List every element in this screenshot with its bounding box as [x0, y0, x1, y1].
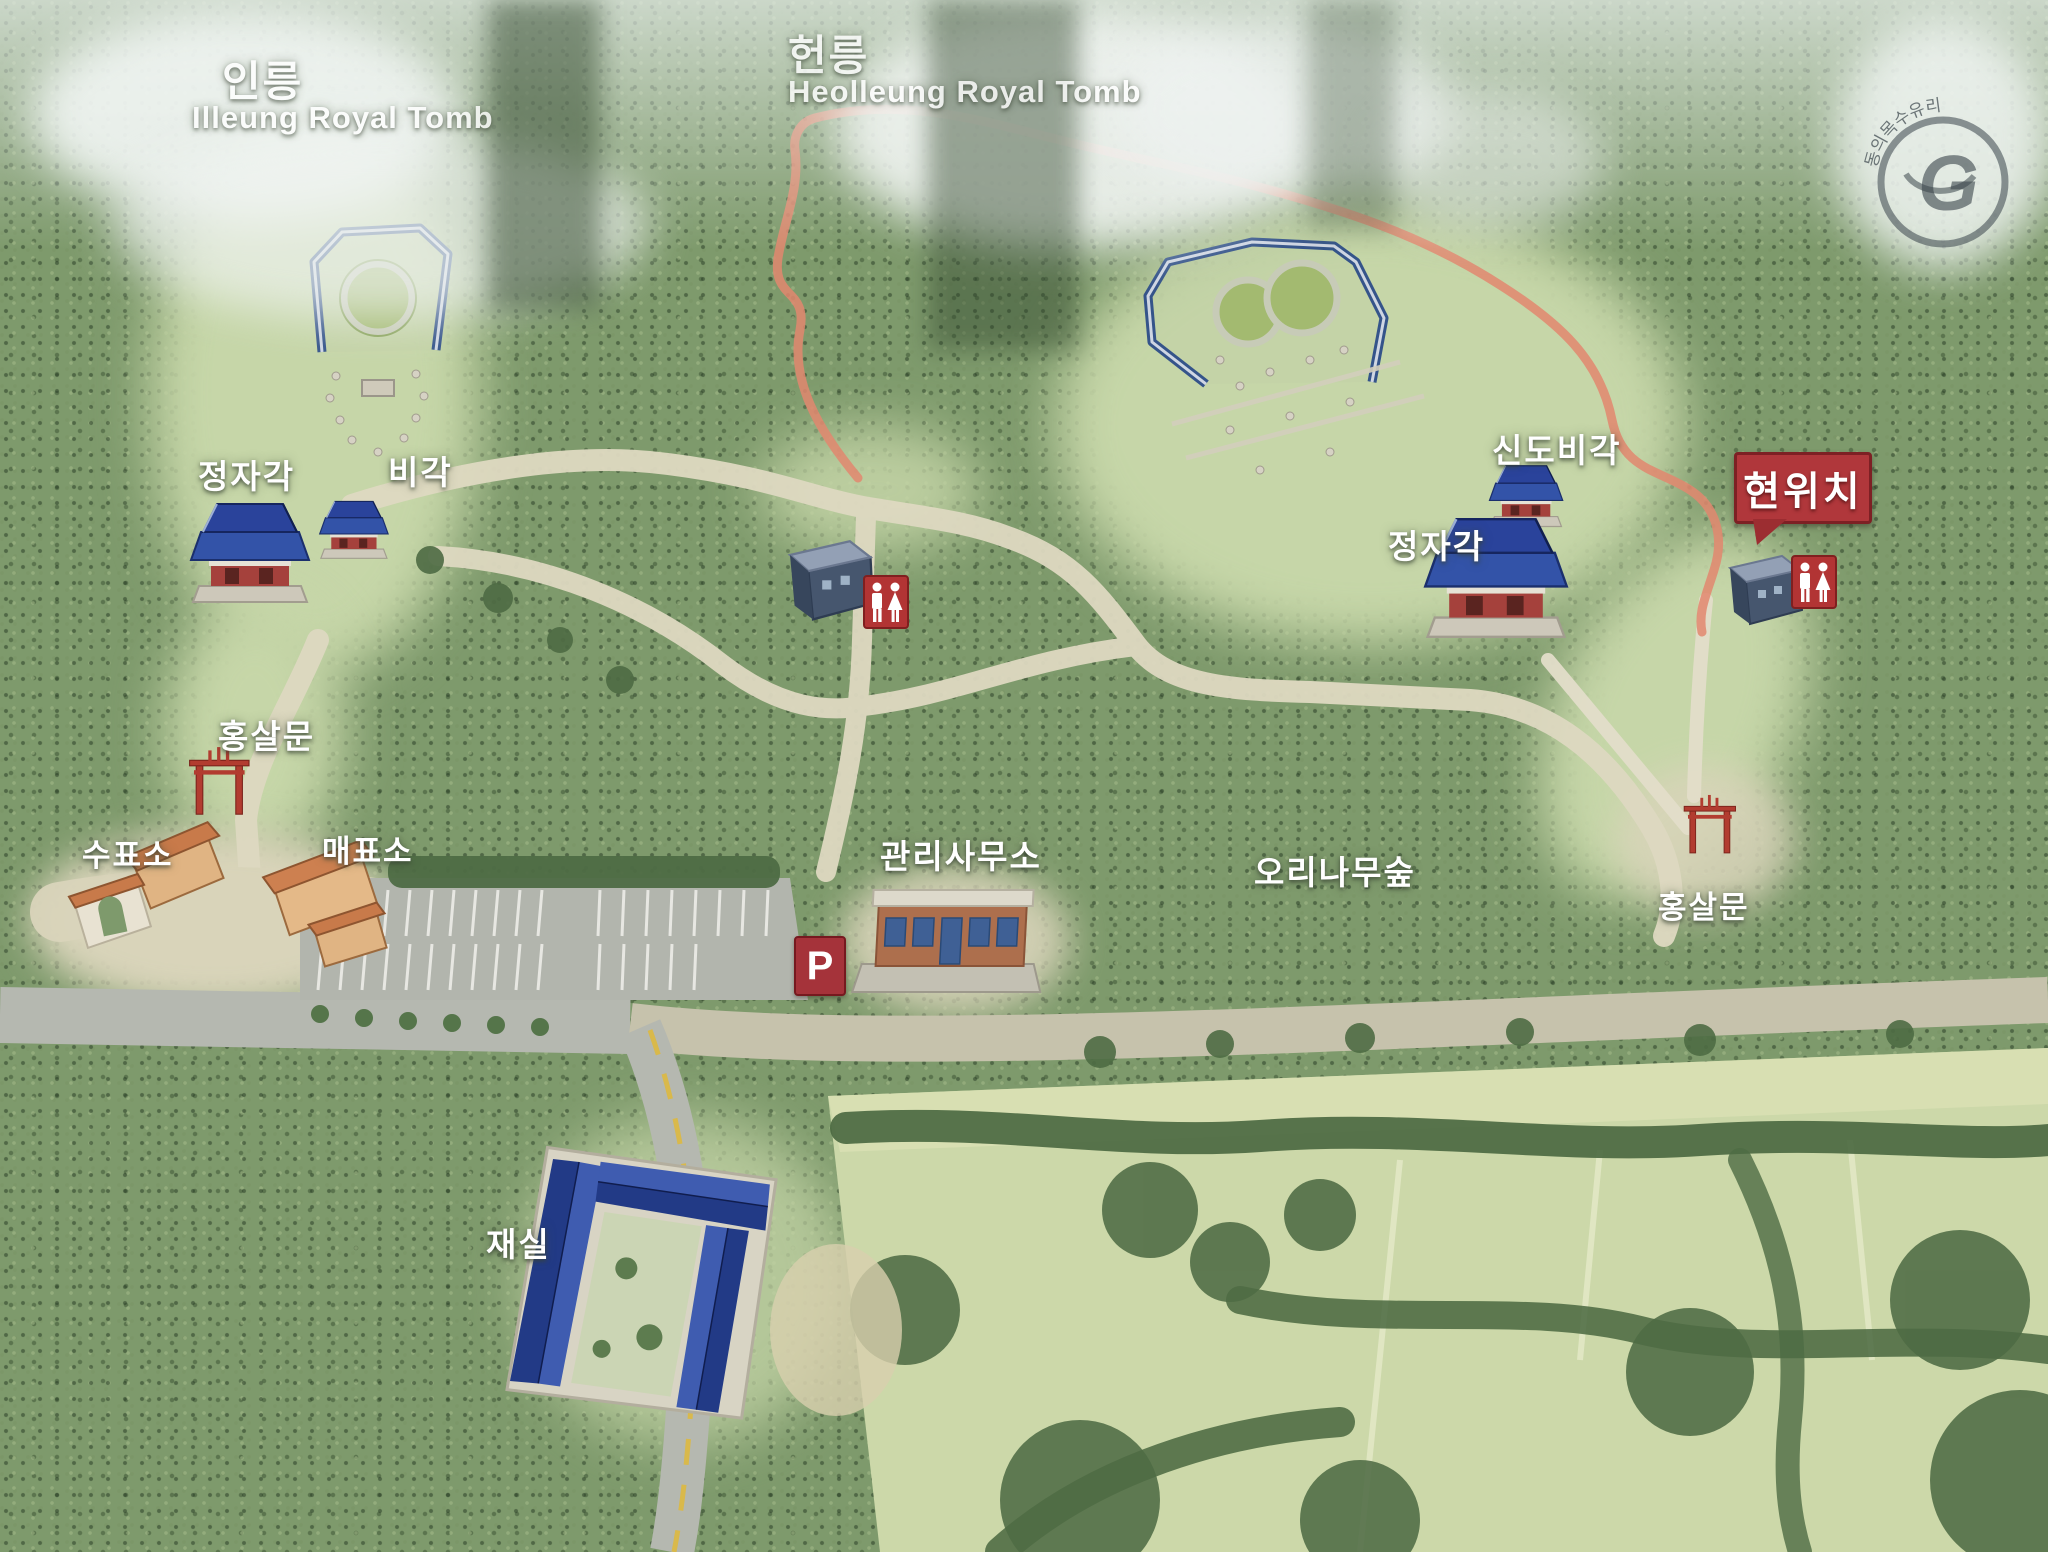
parking-sign: P	[794, 936, 846, 996]
restroom-building-center	[790, 541, 873, 619]
map-drawing	[0, 0, 2048, 1552]
jeongjagak-left-building	[191, 504, 309, 602]
tomb-map-signboard: G 동의목수유리 인릉 Illeung Royal Tomb 헌릉 Heolle…	[0, 0, 2048, 1552]
office-building	[852, 890, 1045, 992]
current-location-text: 현위치	[1743, 459, 1862, 517]
illeung-tomb-enclosure	[314, 228, 448, 456]
jaesil-dirt-yard	[770, 1244, 902, 1416]
hongsalmun-left-gate	[190, 747, 249, 814]
restroom-sign-center	[864, 576, 908, 628]
heolleung-tomb-enclosure	[1148, 242, 1424, 474]
farm-fields	[828, 1048, 2048, 1552]
bigak-building	[320, 501, 388, 558]
hongsalmun-right-gate	[1684, 795, 1735, 853]
current-location-badge: 현위치	[1734, 452, 1872, 524]
jeongjagak-right-building	[1425, 519, 1567, 637]
main-road	[0, 1000, 2048, 1039]
restroom-sign-right	[1792, 556, 1836, 608]
parking-sign-text: P	[807, 944, 834, 989]
maepyoso-buildings	[260, 838, 392, 968]
jaesil-building	[492, 1128, 795, 1442]
sindobigak-building	[1490, 466, 1563, 527]
